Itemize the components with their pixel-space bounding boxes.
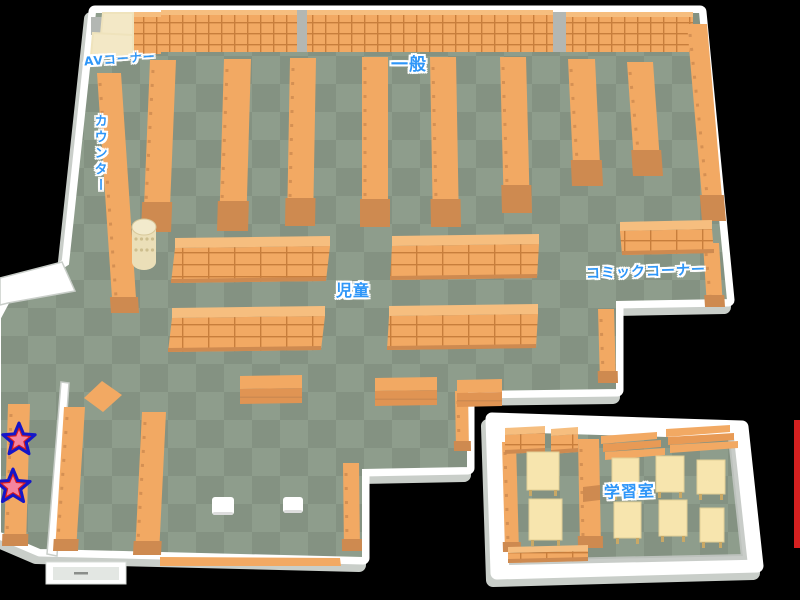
study-desk	[697, 460, 725, 494]
bookshelf-base	[285, 198, 316, 226]
comic-shelf-base	[598, 371, 618, 383]
counter-desk-base	[110, 297, 139, 313]
bookshelf-base	[631, 150, 663, 176]
bookshelf-base	[217, 201, 249, 231]
bookshelf-base	[571, 160, 603, 186]
study-desk	[529, 499, 562, 540]
kids-bookshelf-top	[172, 306, 325, 318]
star-bookshelf-base	[2, 534, 28, 546]
study-desk	[612, 458, 639, 494]
reading-table-front	[240, 388, 302, 404]
bottom-wall-shelf	[160, 557, 341, 566]
reading-table-front	[457, 392, 502, 407]
reading-table	[457, 379, 502, 393]
bookshelf-base	[501, 185, 532, 213]
reading-table-front	[375, 390, 437, 406]
kids-bookshelf-top	[389, 304, 538, 316]
study-desk	[659, 500, 687, 536]
comic-shelf-base	[704, 295, 725, 307]
av-booth	[101, 13, 133, 35]
library-floor-map: AVコーナー一般カウンター児童コミックコーナー学習室	[0, 0, 800, 600]
wall-shelf-band	[161, 10, 297, 52]
study-desk	[614, 502, 641, 538]
support-pillar	[553, 12, 566, 52]
study-desk	[700, 508, 724, 542]
av-booth	[91, 33, 133, 56]
bookshelf-base	[53, 539, 79, 551]
divider-notch	[583, 485, 600, 502]
study-desk	[656, 456, 684, 492]
map-canvas	[0, 0, 800, 600]
reading-table	[240, 375, 302, 389]
wall-shelf-band	[307, 10, 553, 52]
red-edge-marker	[794, 420, 800, 548]
wall-bookshelf-base	[454, 441, 471, 451]
support-pillar	[297, 10, 307, 52]
kids-bookshelf-top	[175, 236, 330, 248]
wall-bookshelf-base	[342, 539, 362, 551]
bookshelf-base	[133, 541, 162, 555]
bookshelf-base	[360, 199, 390, 227]
wall-shelf-band	[133, 12, 161, 54]
wall-bookshelf-base	[700, 195, 726, 221]
reading-table	[375, 377, 437, 391]
bookshelf-base	[431, 199, 461, 227]
study-desk	[527, 452, 559, 490]
wall-shelf-band	[566, 12, 693, 52]
kids-bookshelf-top	[392, 234, 539, 246]
wall-bookshelf	[343, 463, 360, 551]
